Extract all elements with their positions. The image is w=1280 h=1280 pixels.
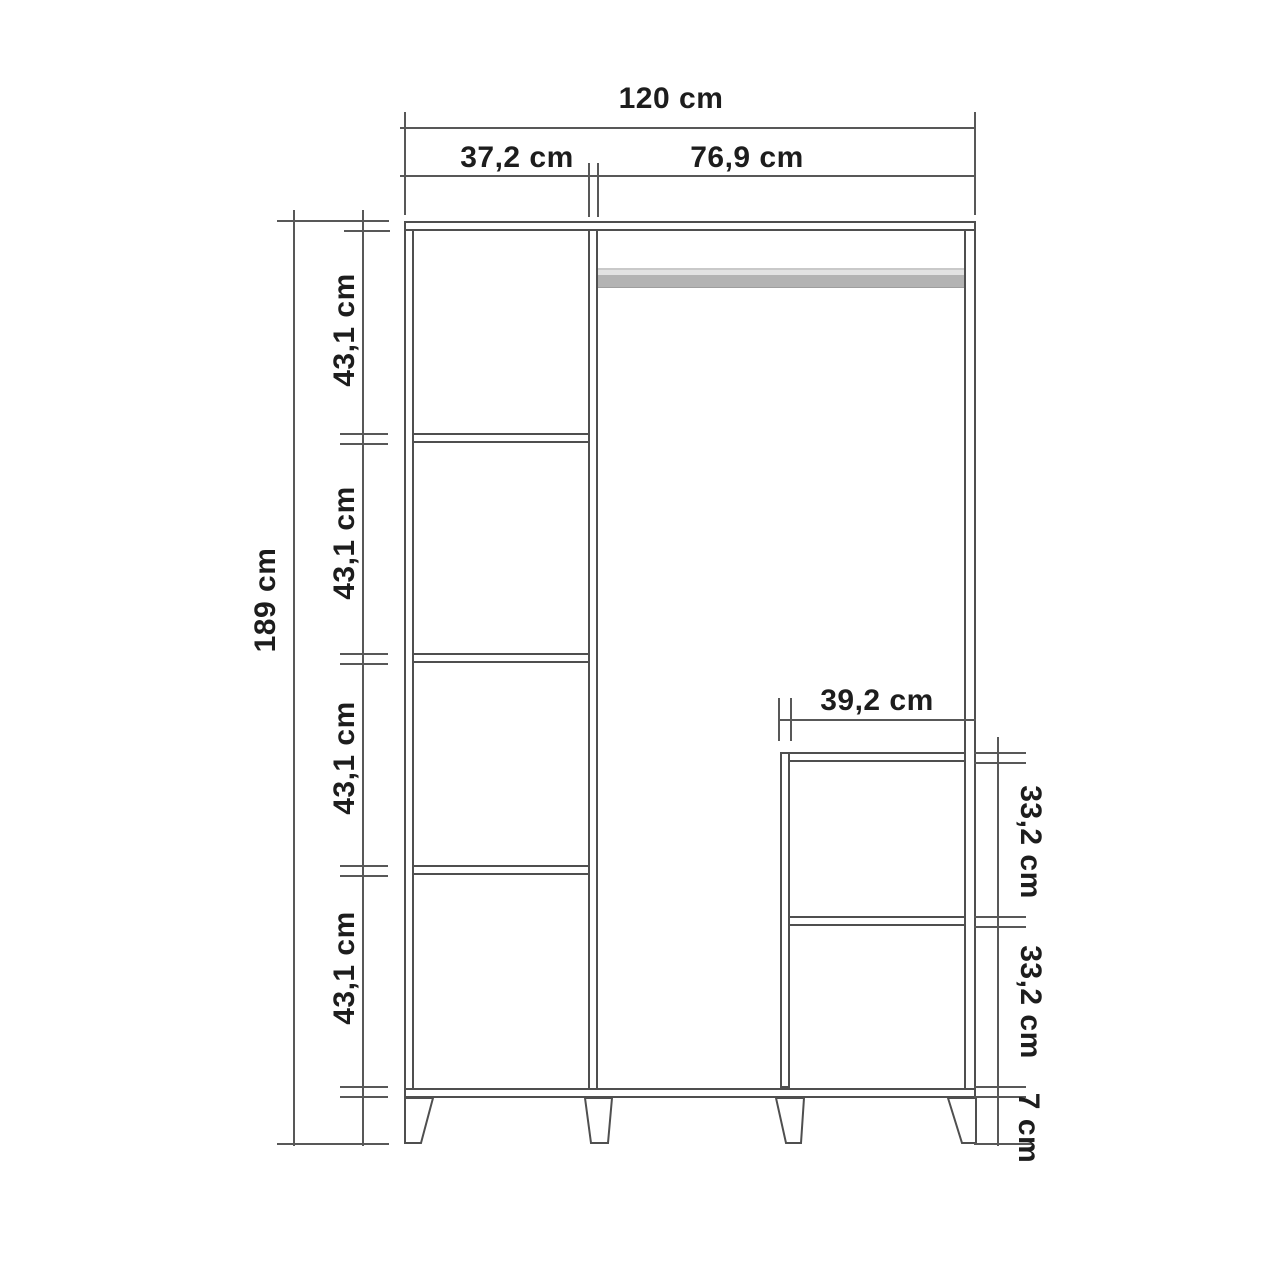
label-leg-height: 7 cm	[1011, 1093, 1045, 1163]
dimension-line-inner-heights	[997, 737, 999, 1146]
leg-3	[776, 1098, 804, 1143]
dimension-tick-inner-shelf-b	[974, 926, 1026, 928]
label-inner-lower-gap: 33,2 cm	[1013, 945, 1047, 1059]
dimension-line-inner-width	[778, 719, 976, 721]
label-inner-width: 39,2 cm	[820, 684, 934, 718]
dimension-tick-inner-top-b	[974, 762, 1026, 764]
leg-4	[948, 1098, 976, 1143]
label-inner-upper-gap: 33,2 cm	[1013, 785, 1047, 899]
dimension-tick-inner-shelf-a	[974, 916, 1026, 918]
cabinet-legs	[0, 0, 1280, 1280]
leg-2	[585, 1098, 612, 1143]
leg-1	[405, 1098, 433, 1143]
drawing-canvas: 120 cm 37,2 cm 76,9 cm 189 cm 43,1 cm 43…	[0, 0, 1280, 1280]
dimension-tick-inner-top-a	[974, 752, 1026, 754]
dimension-tick-inner-bottom-a	[974, 1086, 1026, 1088]
